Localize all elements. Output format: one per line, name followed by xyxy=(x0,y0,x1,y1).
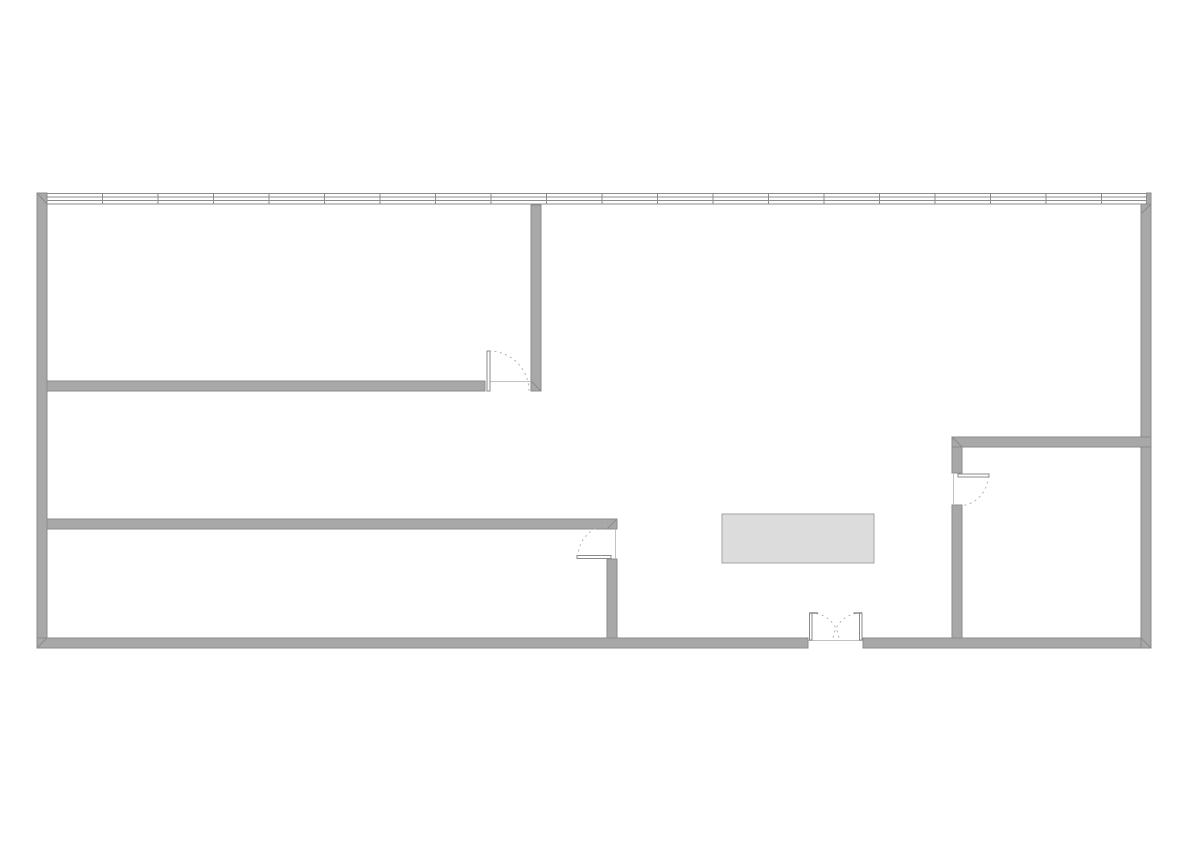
door-room2-leaf xyxy=(577,556,611,559)
door-room3-leaf xyxy=(958,474,989,477)
entrance-double-door-leaf xyxy=(860,613,863,640)
entrance-double-door-swing-arc xyxy=(811,613,839,641)
entrance-double-door-swing-arc xyxy=(833,613,861,641)
room2-east-wall xyxy=(607,559,617,638)
window-wall-right-cap xyxy=(1147,193,1152,204)
room3-west-wall-lower xyxy=(952,505,962,638)
room3-west-wall-upper xyxy=(952,447,962,473)
door-room2-swing-arc xyxy=(578,525,610,557)
door-room1-leaf xyxy=(487,351,490,391)
exterior-wall-left xyxy=(37,193,47,648)
exterior-wall-bottom-east xyxy=(863,638,1151,648)
entrance-double-door-leaf xyxy=(810,613,813,640)
floor-plan-svg xyxy=(0,0,1191,842)
room1-east-wall xyxy=(531,205,541,391)
door-room1-swing-arc xyxy=(489,351,529,391)
room1-south-wall xyxy=(47,381,485,391)
floor-plan-canvas xyxy=(0,0,1191,842)
exterior-wall-bottom-west xyxy=(37,638,808,648)
table xyxy=(722,514,874,563)
room3-north-wall xyxy=(952,437,1151,447)
exterior-wall-right xyxy=(1141,204,1151,648)
door-room3-swing-arc xyxy=(958,476,988,506)
corridor-south-wall xyxy=(47,519,617,529)
